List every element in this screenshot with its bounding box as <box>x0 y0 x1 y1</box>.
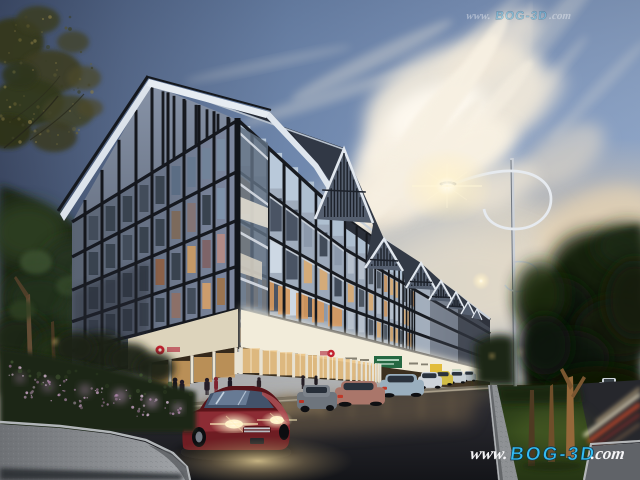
svg-text:BOG-3D: BOG-3D <box>509 444 598 465</box>
svg-text:www.: www. <box>469 444 509 463</box>
svg-text:.com: .com <box>590 444 626 463</box>
svg-text:.com: .com <box>549 10 572 22</box>
svg-text:BOG-3D: BOG-3D <box>495 9 549 23</box>
svg-text:www.: www. <box>466 10 492 22</box>
